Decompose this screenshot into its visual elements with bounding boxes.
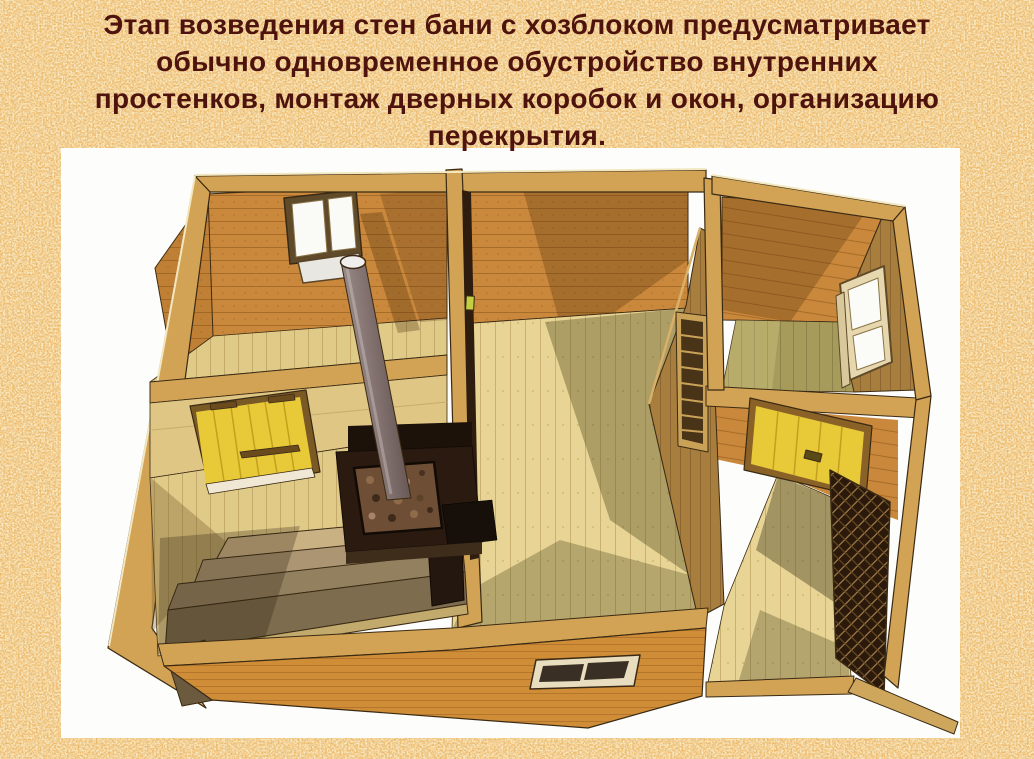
caption-line: обычно одновременное обустройство внутре… — [0, 43, 1034, 80]
door-latch — [466, 296, 475, 310]
caption-line: перекрытия. — [0, 117, 1034, 154]
banya-model — [108, 169, 958, 734]
presentation-slide: Этап возведения стен бани с хозблоком пр… — [0, 0, 1034, 759]
caption-line: простенков, монтаж дверных коробок и око… — [0, 80, 1034, 117]
lattice-screen — [830, 470, 890, 694]
caption-line: Этап возведения стен бани с хозблоком пр… — [0, 6, 1034, 43]
louver-vent — [676, 312, 708, 452]
steam-room-door — [190, 390, 320, 494]
front-vent — [530, 655, 640, 689]
slide-caption: Этап возведения стен бани с хозблоком пр… — [0, 6, 1034, 154]
right-room — [722, 197, 918, 392]
